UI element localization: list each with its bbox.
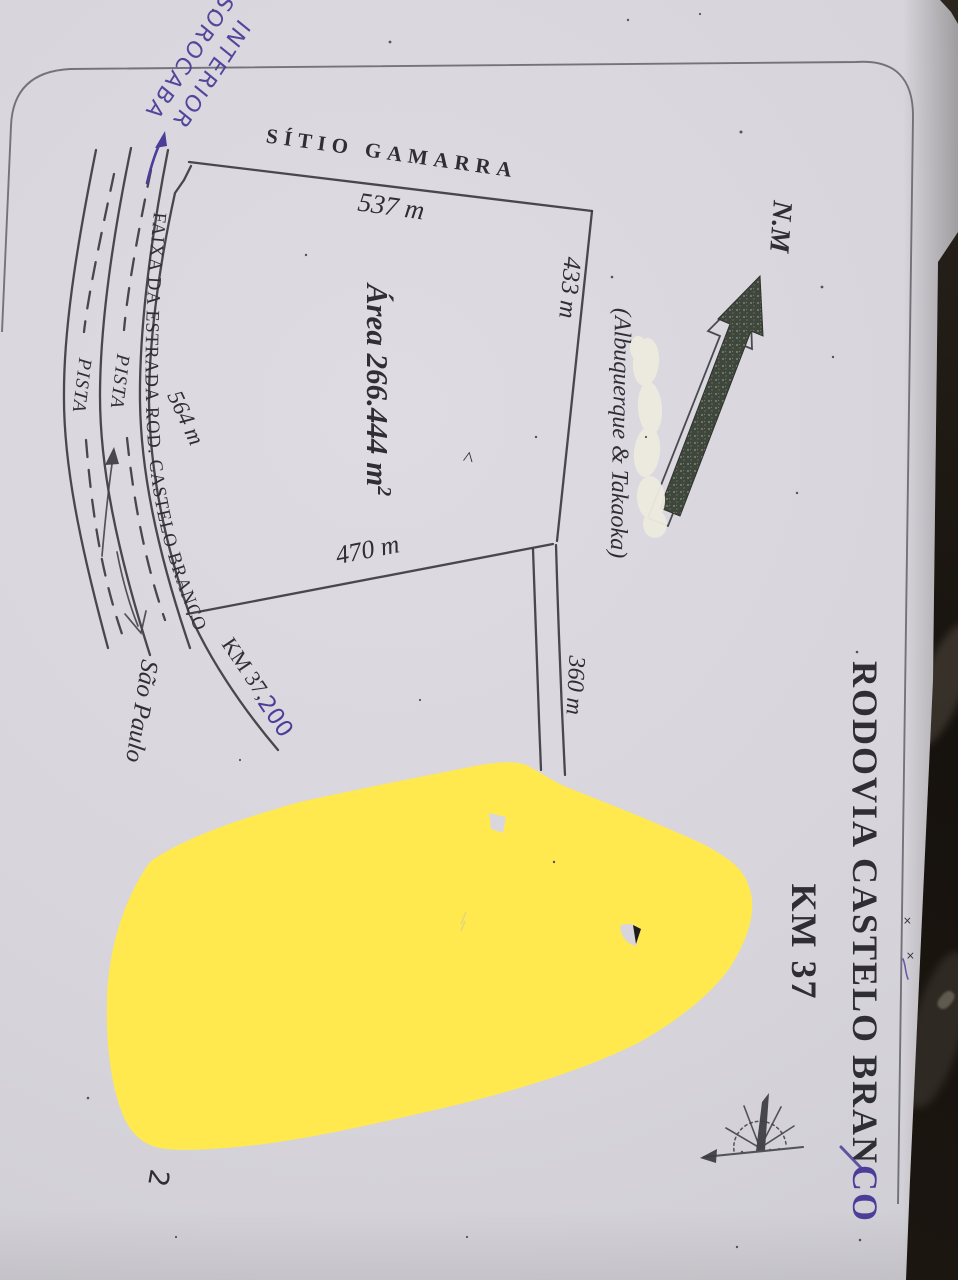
lane-divider-1-upper	[84, 174, 114, 332]
km-marker-printed: KM 37,	[217, 633, 276, 704]
southbound-arrow-shaft	[117, 552, 138, 626]
northbound-arrow-head	[105, 447, 119, 465]
compass-west-arrowhead	[700, 1149, 717, 1163]
white-out-marks	[630, 336, 667, 538]
lane1-label: PISTA	[68, 356, 96, 415]
title-line1-printed: RODOVIA CASTELO BRAN	[845, 661, 885, 1165]
pencil-x-mark-1: ×	[901, 916, 914, 925]
yellow-redaction-blob	[107, 762, 752, 1150]
compass-baseline	[704, 1147, 803, 1157]
title-line2: KM 37	[784, 884, 824, 1001]
compass-dot	[741, 1151, 743, 1153]
south-direction-label: São Paulo	[120, 658, 163, 764]
survey-map-drawing: SÍTIO GAMARRA 537 m 433 m Área 266.444 m…	[0, 0, 958, 1280]
area-value: Área 266.444 m	[360, 282, 395, 486]
traffic-arrows	[102, 447, 146, 633]
area-label: Área 266.444 m2	[360, 282, 395, 496]
side-right-length-label: 433 m	[553, 256, 585, 320]
area-superscript: 2	[373, 485, 395, 496]
north-arrow	[648, 276, 763, 526]
inner-line-360m-left	[533, 549, 541, 770]
pencil-x-mark-2: ×	[904, 951, 917, 960]
document-title: RODOVIA CASTELO BRANCO KM 37	[784, 661, 885, 1223]
paper-sheet: SÍTIO GAMARRA 537 m 433 m Área 266.444 m…	[0, 0, 958, 1280]
redaction-blob-shape	[107, 762, 752, 1150]
compass-dot	[778, 1148, 780, 1150]
compass-rose	[700, 1093, 803, 1163]
photo-of-survey-document: SÍTIO GAMARRA 537 m 433 m Área 266.444 m…	[0, 0, 958, 1280]
magnetic-north-label: N.M	[763, 199, 798, 255]
side-road-length-label: 564 m	[162, 387, 209, 449]
side-top-length-label: 537 m	[356, 187, 426, 226]
compass-ray-nw	[726, 1128, 760, 1148]
compass-ray-nnw	[744, 1106, 760, 1148]
partially-covered-mark: 2	[141, 1167, 175, 1189]
title-line1-pen-traced: CO	[845, 1165, 885, 1223]
lane2-label: PISTA	[106, 352, 134, 411]
north-arrow-body	[660, 276, 763, 516]
side-inner-length-label: 360 m	[560, 654, 589, 716]
pen-scribble-right-edge	[903, 959, 908, 979]
side-bottom-length-label: 470 m	[333, 529, 402, 570]
property-name-label: SÍTIO GAMARRA	[265, 124, 519, 183]
compass-dot	[769, 1149, 771, 1151]
title-line1: RODOVIA CASTELO BRANCO	[845, 661, 885, 1223]
surveyor-check-mark: <	[456, 449, 480, 464]
pen-arrow-head	[155, 131, 167, 148]
